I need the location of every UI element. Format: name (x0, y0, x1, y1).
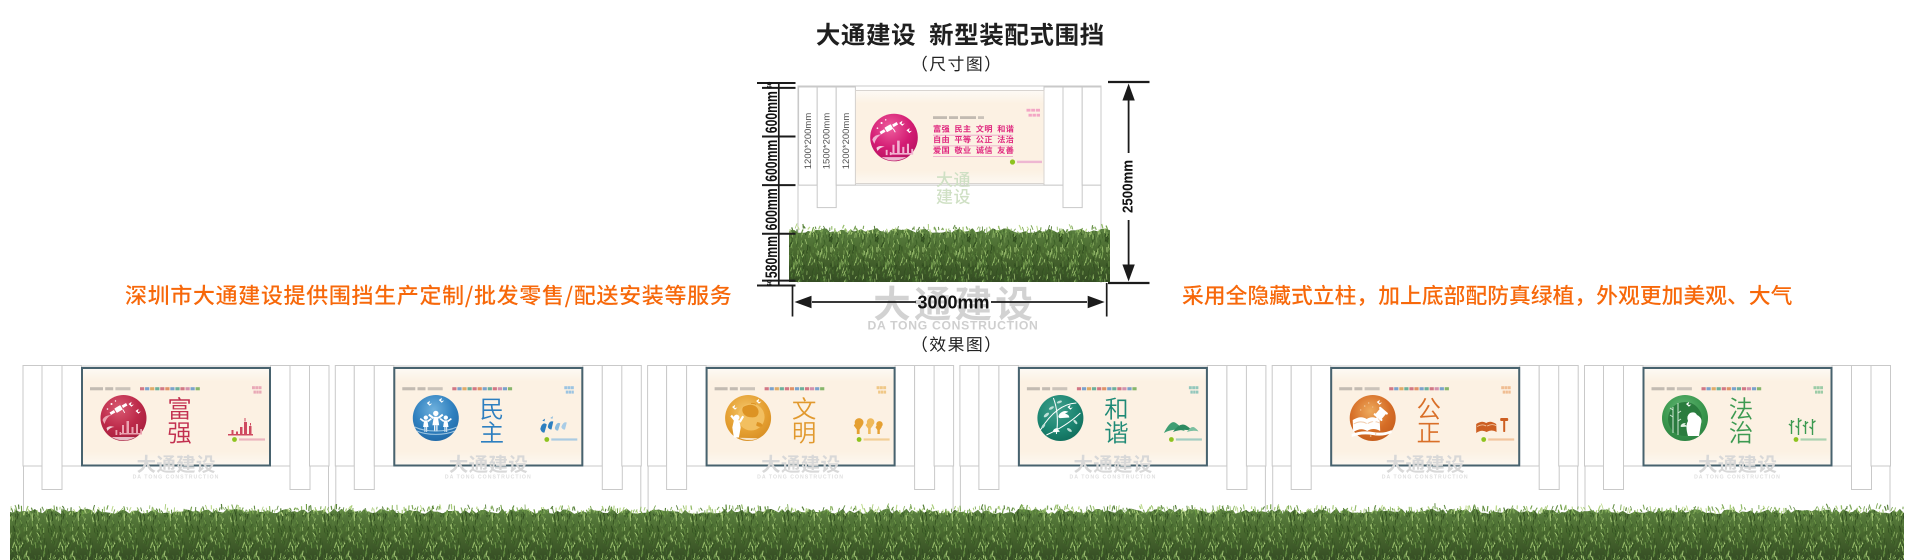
svg-text:580mm: 580mm (763, 236, 781, 278)
svg-text:600mm: 600mm (763, 188, 781, 230)
svg-text:60: 60 (767, 279, 774, 287)
svg-text:DA TONG CONSTRUCTION: DA TONG CONSTRUCTION (1694, 474, 1781, 480)
svg-text:DA TONG CONSTRUCTION: DA TONG CONSTRUCTION (133, 474, 220, 480)
svg-text:1200*200mm: 1200*200mm (803, 113, 814, 170)
svg-text:1500*200mm: 1500*200mm (822, 113, 833, 170)
svg-text:600mm: 600mm (763, 91, 781, 133)
svg-text:2500mm: 2500mm (1120, 160, 1137, 213)
svg-text:600mm: 600mm (763, 140, 781, 182)
svg-text:DA TONG CONSTRUCTION: DA TONG CONSTRUCTION (757, 474, 844, 480)
svg-text:60: 60 (767, 81, 774, 89)
svg-text:DA TONG CONSTRUCTION: DA TONG CONSTRUCTION (1069, 474, 1156, 480)
svg-text:1200*200mm: 1200*200mm (841, 113, 852, 170)
svg-text:DA TONG CONSTRUCTION: DA TONG CONSTRUCTION (867, 319, 1038, 333)
svg-text:DA TONG CONSTRUCTION: DA TONG CONSTRUCTION (445, 474, 532, 480)
svg-text:3000mm: 3000mm (918, 292, 990, 313)
svg-text:DA TONG CONSTRUCTION: DA TONG CONSTRUCTION (1382, 474, 1469, 480)
